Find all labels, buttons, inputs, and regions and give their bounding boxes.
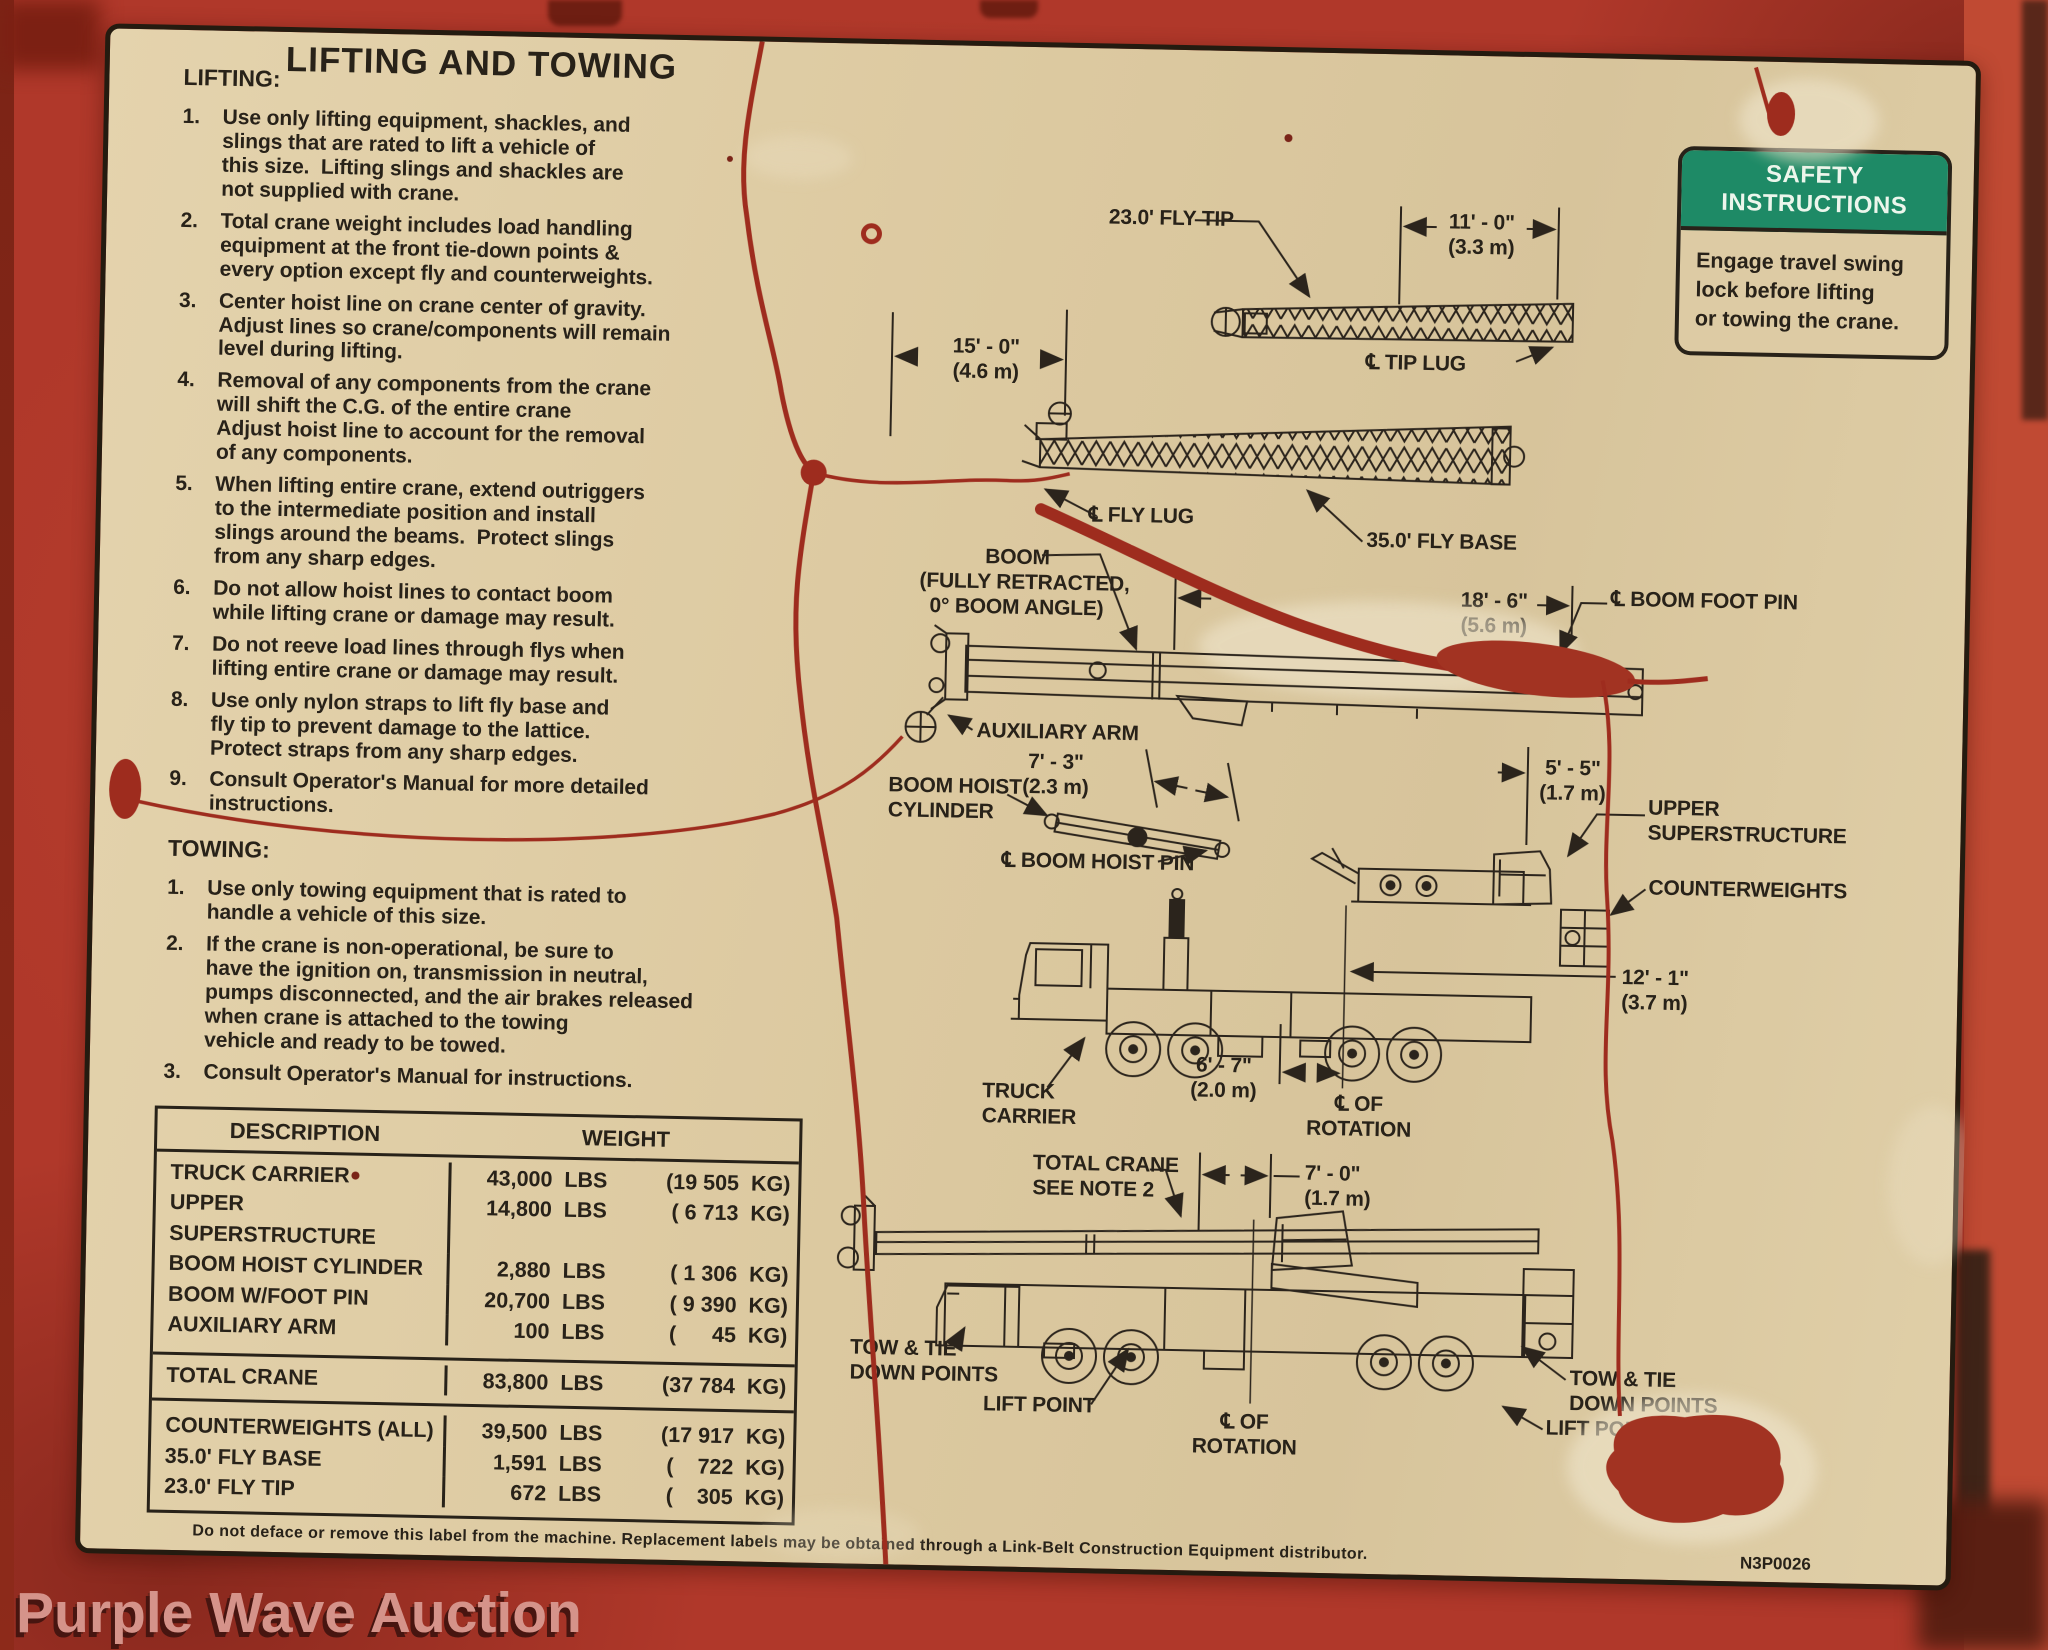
cell-description: 23.0' FLY TIP [150,1471,446,1507]
item-number: 2. [164,932,206,1052]
table-group-total: TOTAL CRANE83,800 LBS(37 784 KG) [152,1351,795,1413]
lifting-list: 1.Use only lifting equipment, shackles, … [169,105,768,827]
safety-instructions-box: SAFETY INSTRUCTIONS Engage travel swing … [1674,146,1952,360]
weight-kg: ( 722 KG) [601,1450,785,1484]
item-number: 5. [174,472,216,569]
counterweights-label: COUNTERWEIGHTS [1648,875,1847,904]
item-text: Use only lifting equipment, shackles, an… [221,106,768,213]
cell-description: AUXILIARY ARM [153,1309,449,1345]
dimension-meters: (4.6 m) [915,358,1055,386]
dimension-7-3: 7' - 3"(2.3 m) [995,748,1116,801]
table-group-optional: COUNTERWEIGHTS (ALL)39,500 LBS(17 917 KG… [150,1405,794,1522]
item-text: Total crane weight includes load handlin… [219,209,765,292]
dimension-12-1: 12' - 1"(3.7 m) [1621,965,1689,1017]
label-line2: ROTATION [1293,1116,1423,1144]
label-line2: DOWN POINTS [1569,1391,1718,1419]
list-item: 2.If the crane is non-operational, be su… [164,932,751,1063]
column-header-weight: WEIGHT [452,1122,799,1155]
weight-table: DESCRIPTION WEIGHT TRUCK CARRIER43,000 L… [147,1105,803,1525]
dimension-15-0: 15' - 0"(4.6 m) [915,333,1056,386]
label-line2: SEE NOTE 2 [1032,1175,1178,1203]
fly-lug-label: ℄ FLY LUG [1089,502,1195,529]
list-item: 7.Do not reeve load lines through flys w… [171,632,757,692]
label-line1: TRUCK [982,1078,1077,1105]
boom-hoist-pin-label: ℄ BOOM HOIST PIN [1002,847,1195,876]
weight-lbs: 43,000 LBS [457,1162,608,1196]
weight-lbs: 672 LBS [451,1477,602,1511]
list-item: 2.Total crane weight includes load handl… [179,209,765,293]
dimension-feet: 5' - 5" [1508,755,1638,783]
fly-tip-label: 23.0' FLY TIP [1109,205,1234,233]
upper-superstructure-label: UPPERSUPERSTRUCTURE [1647,795,1847,849]
auction-watermark: Purple Wave Auction [16,1580,582,1646]
background-topleft-shadow [0,0,100,70]
label-line2: CYLINDER [888,797,1022,825]
tip-lug-label: ℄ TIP LUG [1366,350,1466,377]
dimension-18-6: 18' - 6"(5.6 m) [1418,587,1569,640]
item-text: Removal of any components from the crane… [216,369,763,476]
part-number: N3P0026 [1740,1553,1811,1574]
dimension-feet: 11' - 0" [1407,208,1557,236]
fly-base-label: 35.0' FLY BASE [1366,528,1517,556]
label-line1: ℄ OF [1174,1408,1314,1436]
item-text: Use only towing equipment that is rated … [206,877,752,936]
cell-weight: 672 LBS( 305 KG) [445,1477,792,1514]
list-item: 1.Use only lifting equipment, shackles, … [181,105,768,212]
dimension-5-5: 5' - 5"(1.7 m) [1507,755,1638,808]
auxiliary-arm-label: AUXILIARY ARM [976,718,1139,746]
dimension-feet: 15' - 0" [916,333,1056,361]
item-number: 1. [181,105,223,202]
cell-weight: 83,800 LBS(37 784 KG) [447,1365,794,1402]
tow-tie-right-label: TOW & TIEDOWN POINTS [1569,1366,1718,1419]
dimension-feet: 6' - 7" [1154,1052,1294,1080]
background-top-mark-2 [980,0,1038,18]
safety-title-line2: INSTRUCTIONS [1681,187,1948,222]
boom-label-line1: BOOM [920,543,1115,572]
item-text: If the crane is non-operational, be sure… [204,933,751,1064]
total-crane-label: TOTAL CRANESEE NOTE 2 [1032,1150,1179,1203]
safety-box-body: Engage travel swing lock before lifting … [1678,230,1946,356]
item-number: 2. [179,209,220,282]
weight-kg: ( 9 390 KG) [605,1287,789,1321]
weight-lbs: 1,591 LBS [451,1447,602,1481]
dimension-meters: (2.0 m) [1153,1077,1293,1105]
label-line2: DOWN POINTS [849,1360,998,1388]
background-left-edge [0,0,14,1650]
boom-label: BOOM(FULLY RETRACTED,0° BOOM ANGLE) [919,543,1115,622]
weight-kg: (17 917 KG) [602,1419,786,1453]
lifting-towing-decal: LIFTING AND TOWING LIFTING: 1.Use only l… [75,23,1981,1590]
lift-point-left-label: LIFT POINT [983,1391,1096,1418]
item-text: Consult Operator's Manual for instructio… [203,1060,748,1095]
weight-lbs: 20,700 LBS [455,1284,606,1318]
label-line1: TOTAL CRANE [1033,1150,1179,1178]
background-top-mark-1 [548,0,622,26]
dimension-meters: (2.3 m) [995,774,1115,802]
centerline-rotation-label-2: ℄ OFROTATION [1174,1408,1315,1461]
item-text: Use only nylon straps to lift fly base a… [210,688,756,771]
item-text: Do not reeve load lines through flys whe… [211,632,757,691]
dimension-6-7: 6' - 7"(2.0 m) [1153,1052,1294,1105]
cell-description: TOTAL CRANE [152,1359,448,1395]
background-topright-dark [2022,0,2048,420]
dimension-meters: (3.3 m) [1406,234,1556,262]
instructions-column: LIFTING AND TOWING LIFTING: 1.Use only l… [139,38,828,1526]
item-text: Do not allow hoist lines to contact boom… [213,576,759,635]
list-item: 3.Center hoist line on crane center of g… [178,288,764,372]
centerline-rotation-label-1: ℄ OFROTATION [1293,1090,1424,1143]
weight-kg: ( 6 713 KG) [606,1196,790,1261]
boom-label-line2: (FULLY RETRACTED, [919,568,1114,597]
weight-lbs: 100 LBS [454,1315,605,1349]
dimension-meters: (1.7 m) [1507,780,1637,808]
weight-lbs: 83,800 LBS [453,1365,604,1399]
weight-kg: ( 305 KG) [601,1480,785,1514]
list-item: 5.When lifting entire crane, extend outr… [174,472,761,579]
towing-heading: TOWING: [168,835,812,875]
cell-weight: 14,800 LBS( 6 713 KG) [450,1193,798,1261]
dimension-meters: (5.6 m) [1418,612,1568,640]
item-text: Consult Operator's Manual for more detai… [209,768,755,827]
weight-kg: (37 784 KG) [603,1369,787,1403]
item-number: 1. [166,876,207,925]
label-line2: CARRIER [982,1103,1077,1130]
boom-foot-pin-label: ℄ BOOM FOOT PIN [1611,587,1798,616]
dimension-feet: 12' - 1" [1621,965,1689,992]
weight-lbs: 2,880 LBS [455,1254,606,1288]
list-item: 6.Do not allow hoist lines to contact bo… [173,576,759,636]
item-number: 3. [178,288,219,361]
table-row: TOTAL CRANE83,800 LBS(37 784 KG) [152,1359,794,1402]
list-item: 8.Use only nylon straps to lift fly base… [170,687,756,771]
item-text: When lifting entire crane, extend outrig… [214,473,761,580]
dimension-feet: 7' - 3" [996,748,1116,776]
label-line2: ROTATION [1174,1433,1314,1461]
weight-kg: ( 45 KG) [604,1318,788,1352]
label-line1: TOW & TIE [850,1335,999,1363]
item-number: 9. [169,767,210,816]
list-item: 1.Use only towing equipment that is rate… [166,876,752,936]
safety-box-header: SAFETY INSTRUCTIONS [1681,150,1949,235]
column-header-description: DESCRIPTION [157,1116,453,1148]
table-group-components: TRUCK CARRIER43,000 LBS(19 505 KG) UPPER… [153,1151,799,1360]
cell-description: UPPER SUPERSTRUCTURE [155,1187,451,1254]
decal-footnote: Do not deface or remove this label from … [192,1522,1368,1564]
list-item: 4.Removal of any components from the cra… [176,368,763,475]
weight-kg: ( 1 306 KG) [605,1257,789,1291]
dimension-11-0: 11' - 0"(3.3 m) [1406,208,1557,261]
weight-lbs: 14,800 LBS [456,1193,607,1257]
cell-weight: 100 LBS( 45 KG) [448,1315,795,1352]
label-line1: ℄ OF [1294,1090,1424,1118]
item-number: 7. [171,632,212,681]
list-item: 3.Consult Operator's Manual for instruct… [163,1060,748,1096]
weight-lbs: 39,500 LBS [452,1416,603,1450]
list-item: 9.Consult Operator's Manual for more det… [169,767,755,827]
dimension-7-0: 7' - 0"(1.7 m) [1304,1161,1371,1213]
dimension-meters: (3.7 m) [1621,990,1689,1017]
item-number: 4. [176,368,218,465]
machine-photo: LIFTING AND TOWING LIFTING: 1.Use only l… [0,0,2048,1650]
item-number: 6. [173,576,214,625]
item-number: 3. [163,1060,203,1085]
dimension-meters: (1.7 m) [1304,1186,1371,1213]
item-text: Center hoist line on crane center of gra… [218,289,764,372]
truck-carrier-label: TRUCKCARRIER [982,1078,1077,1130]
tow-tie-left-label: TOW & TIEDOWN POINTS [849,1335,998,1388]
towing-list: 1.Use only towing equipment that is rate… [163,876,752,1095]
weight-kg: (19 505 KG) [607,1165,791,1199]
dimension-feet: 7' - 0" [1304,1161,1371,1188]
label-line1: TOW & TIE [1569,1366,1718,1394]
dimension-feet: 18' - 6" [1419,587,1569,615]
label-line2: SUPERSTRUCTURE [1647,821,1847,850]
lift-point-right-label: LIFT POI [1545,1416,1630,1443]
item-number: 8. [170,687,211,760]
boom-label-line3: 0° BOOM ANGLE) [919,593,1114,622]
